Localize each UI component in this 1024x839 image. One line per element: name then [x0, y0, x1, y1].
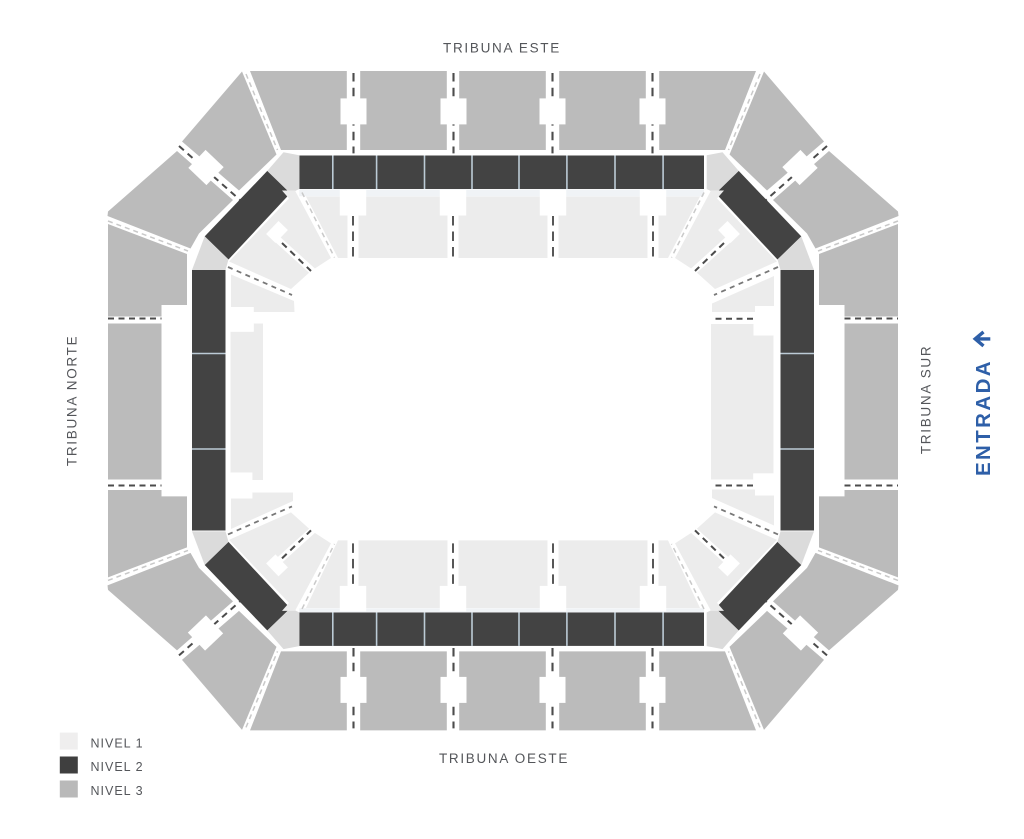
- svg-text:TRIBUNA NORTE: TRIBUNA NORTE: [65, 335, 80, 466]
- svg-text:ENTRADA: ENTRADA: [972, 359, 995, 476]
- svg-text:NIVEL 1: NIVEL 1: [91, 736, 144, 750]
- svg-text:NIVEL 3: NIVEL 3: [91, 784, 144, 798]
- svg-text:NIVEL 2: NIVEL 2: [91, 760, 144, 774]
- svg-text:TRIBUNA OESTE: TRIBUNA OESTE: [439, 751, 569, 766]
- svg-text:TRIBUNA SUR: TRIBUNA SUR: [919, 345, 934, 454]
- svg-text:TRIBUNA ESTE: TRIBUNA ESTE: [443, 41, 561, 56]
